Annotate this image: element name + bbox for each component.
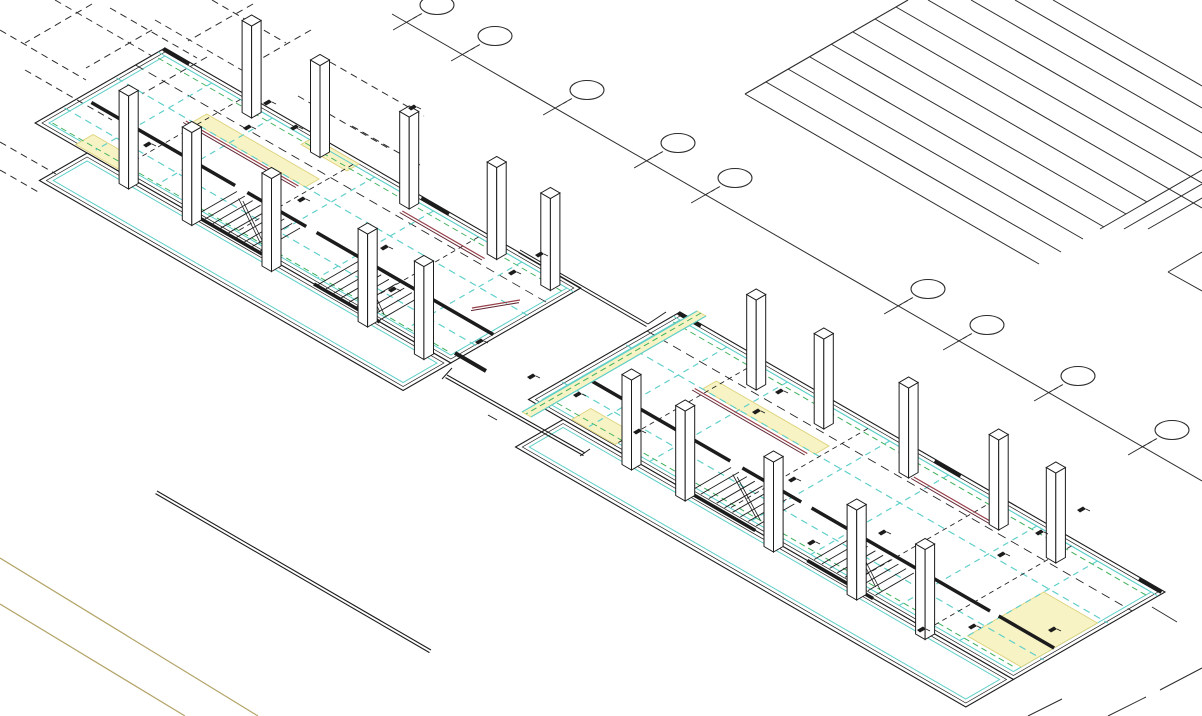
- bubble-leader: [648, 152, 663, 161]
- bubble-leader: [1048, 385, 1063, 394]
- bubble-leader: [407, 14, 422, 23]
- column-face: [857, 505, 867, 601]
- grid-bubble: [478, 27, 512, 46]
- bubble-leader: [957, 334, 972, 343]
- column-face: [182, 127, 192, 226]
- column-face: [676, 406, 686, 502]
- hatch-cross-line: [1148, 198, 1202, 229]
- level-marker-tail: [417, 107, 421, 109]
- column-face: [1056, 468, 1066, 564]
- bubble-leader: [1142, 439, 1157, 448]
- column-face: [414, 261, 424, 360]
- column-face: [129, 91, 139, 190]
- column-face: [685, 406, 695, 502]
- hatch-block: [745, 0, 1202, 291]
- column-face: [320, 60, 330, 158]
- hatch-line: [810, 57, 1104, 227]
- hatch-line: [896, 7, 1202, 183]
- grid-bubble: [970, 316, 1004, 335]
- column-face: [999, 435, 1009, 531]
- tick: [488, 415, 497, 420]
- column-face: [909, 383, 919, 479]
- grid-dashed-line: [110, 8, 197, 58]
- site-grid-segment: [1028, 699, 1062, 716]
- column-face: [424, 261, 434, 360]
- hatch-cross-line: [1168, 252, 1202, 272]
- bubble-leader: [557, 99, 572, 108]
- site-tan-line: [0, 558, 258, 716]
- grid-dashed-line: [0, 170, 40, 193]
- hatch-line: [853, 32, 1147, 202]
- bubble-leader: [898, 298, 913, 307]
- grid-dashed-line: [55, 0, 152, 56]
- column-face: [368, 229, 378, 328]
- site-tan-line: [0, 604, 185, 716]
- column-face: [409, 112, 419, 210]
- hatch-cross-line: [1168, 272, 1202, 291]
- column-face: [814, 334, 824, 430]
- level-marker: [263, 100, 272, 106]
- site-double-line: [156, 494, 430, 653]
- column-face: [311, 60, 321, 158]
- column-face: [541, 193, 551, 291]
- grid-bubble: [1155, 421, 1189, 440]
- column-face: [756, 295, 766, 391]
- hatch-line: [875, 19, 1202, 208]
- column-face: [916, 544, 926, 640]
- column-face: [550, 193, 560, 291]
- grid-bubble: [570, 81, 604, 100]
- column-face: [899, 383, 909, 479]
- hatch-line: [928, 0, 1202, 158]
- level-marker-tail: [1086, 509, 1090, 511]
- grid-dashed-line: [0, 142, 56, 174]
- grid-bubble: [661, 134, 695, 153]
- column-face: [1046, 468, 1056, 564]
- column-face: [262, 173, 272, 272]
- column-face: [242, 21, 252, 119]
- level-marker-tail: [536, 376, 540, 378]
- column-face: [774, 457, 784, 553]
- column-face: [989, 435, 999, 531]
- column-face: [119, 91, 129, 190]
- column-face: [824, 334, 834, 430]
- hatch-line: [831, 44, 1126, 214]
- grid-bubble: [1061, 367, 1095, 386]
- hatch-cross-line: [1124, 184, 1202, 229]
- column-face: [272, 173, 282, 272]
- cad-viewport: [0, 0, 1202, 716]
- column-face: [622, 375, 632, 471]
- column-face: [497, 162, 507, 260]
- column-face: [400, 112, 410, 210]
- column-face: [632, 375, 642, 471]
- site-double-line: [157, 491, 431, 650]
- site-grid-segment: [1160, 668, 1202, 690]
- level-marker: [527, 374, 536, 380]
- hatch-boundary: [745, 0, 908, 94]
- level-marker: [1077, 507, 1086, 513]
- grid-bubble: [718, 169, 752, 188]
- hatch-line: [766, 82, 1061, 252]
- grid-bubble: [911, 280, 945, 299]
- bubble-leader: [705, 187, 720, 196]
- column-face: [847, 505, 857, 601]
- bubble-leader: [465, 45, 480, 54]
- grid-dashed-line: [25, 4, 92, 43]
- hatch-line: [1053, 0, 1202, 86]
- cad-isometric-drawing: [0, 0, 1202, 716]
- site-grid-segment: [1108, 697, 1146, 716]
- column-face: [252, 21, 262, 119]
- hatch-line: [788, 69, 1083, 239]
- hatch-line: [745, 94, 1039, 264]
- column-face: [764, 457, 774, 553]
- columns: [119, 15, 1065, 640]
- column-face: [487, 162, 497, 260]
- wall-thick: [455, 353, 486, 371]
- site-grid-segment: [1152, 607, 1177, 622]
- grid-dashed-line: [0, 30, 86, 80]
- column-face: [925, 544, 935, 640]
- column-face: [192, 127, 202, 226]
- column-face: [747, 295, 757, 391]
- column-face: [358, 229, 368, 328]
- grid-bubble: [420, 0, 454, 15]
- level-marker-tail: [272, 102, 276, 104]
